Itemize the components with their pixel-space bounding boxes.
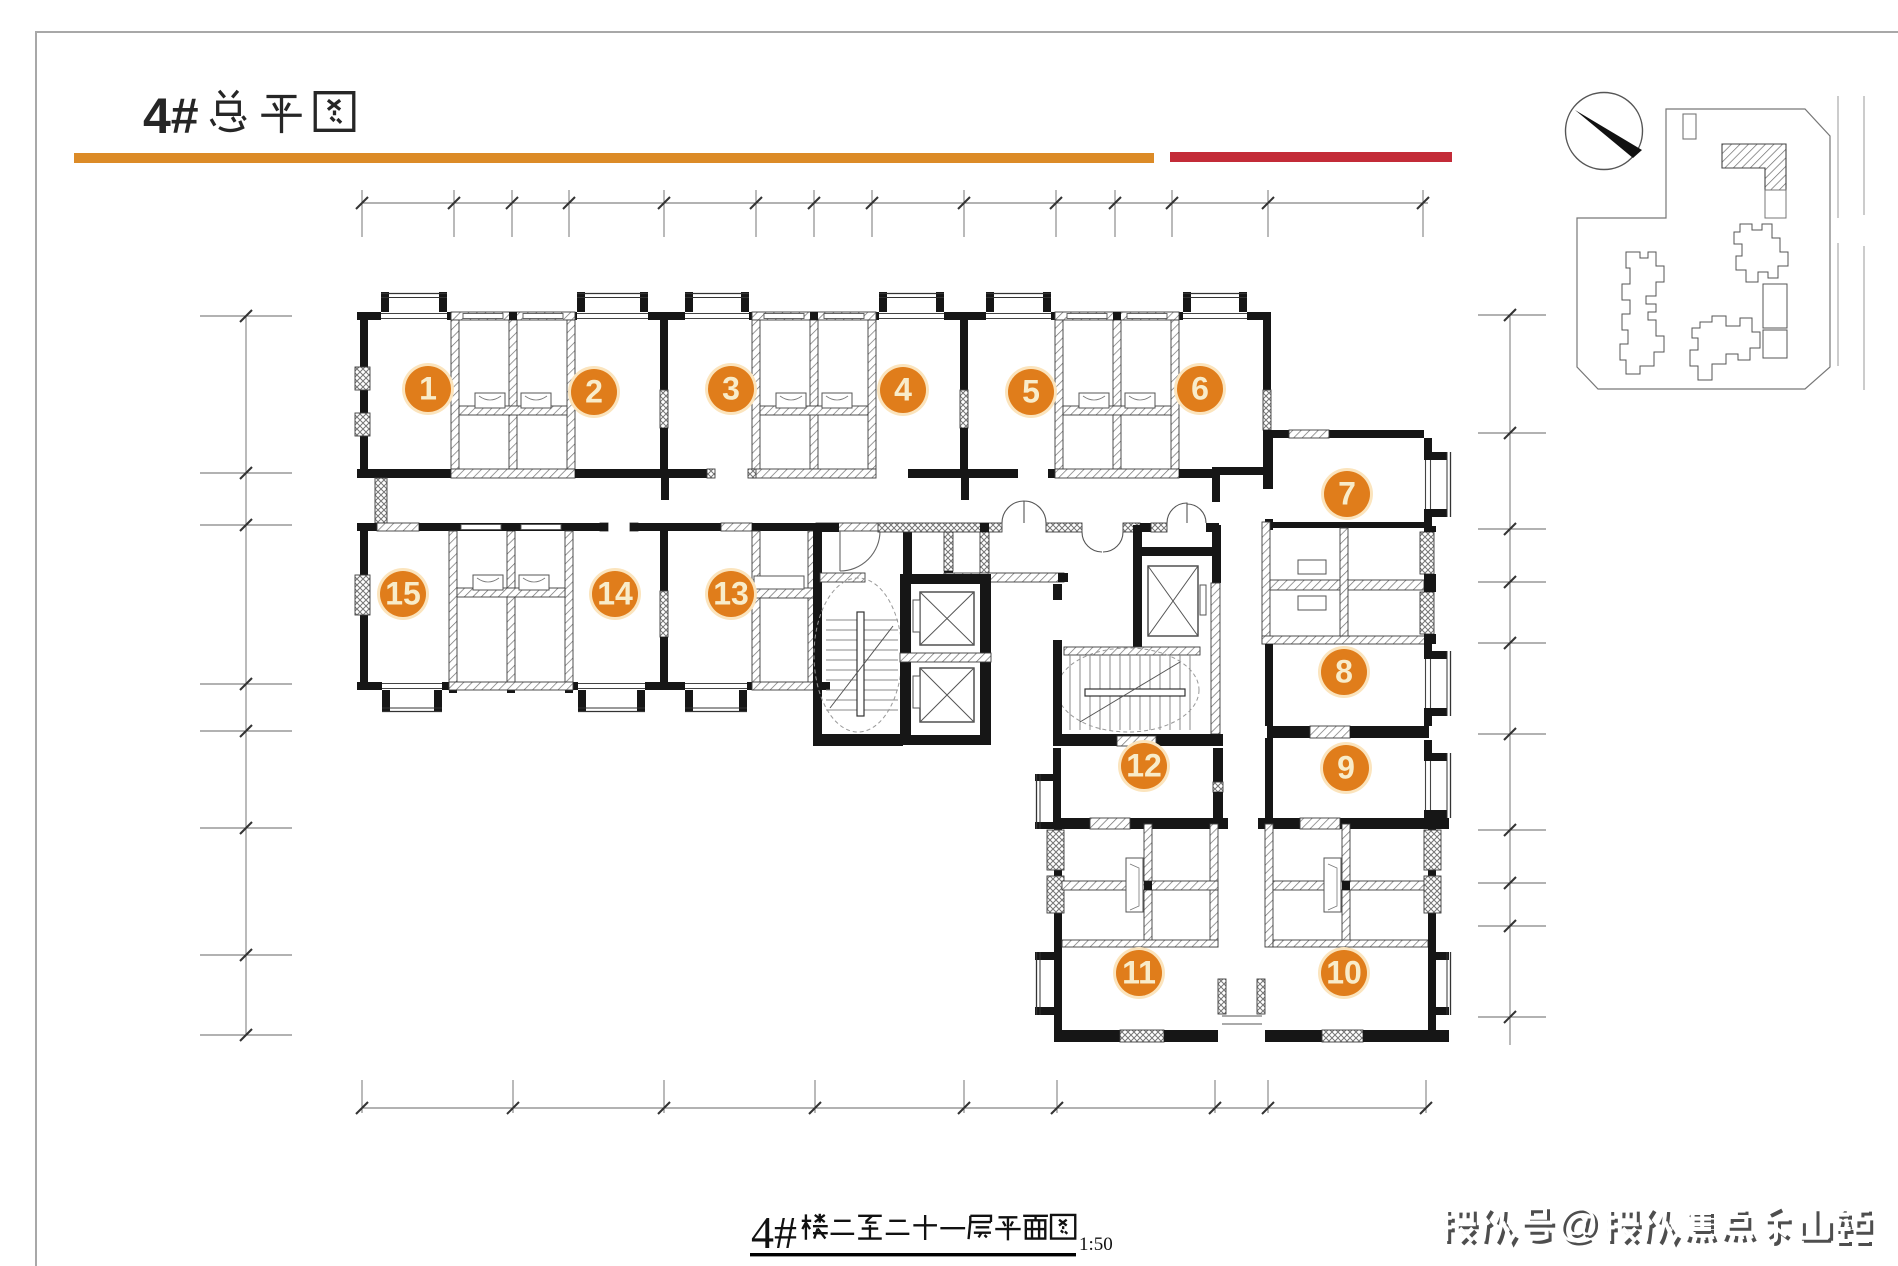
svg-text:2: 2 <box>585 374 603 410</box>
svg-text:6: 6 <box>1191 371 1209 407</box>
svg-text:7: 7 <box>1338 476 1356 512</box>
svg-text:3: 3 <box>722 371 740 407</box>
svg-text:1:50: 1:50 <box>1079 1234 1113 1255</box>
svg-text:11: 11 <box>1122 955 1156 991</box>
svg-text:1: 1 <box>419 371 437 407</box>
svg-text:15: 15 <box>385 576 421 612</box>
svg-text:10: 10 <box>1326 955 1362 991</box>
svg-text:4: 4 <box>894 372 912 408</box>
svg-text:4#: 4# <box>751 1207 797 1258</box>
svg-text:@: @ <box>1557 1200 1599 1246</box>
svg-text:9: 9 <box>1337 750 1355 786</box>
svg-text:12: 12 <box>1126 748 1162 784</box>
svg-text:8: 8 <box>1335 654 1353 690</box>
svg-text:14: 14 <box>597 576 633 612</box>
svg-text:13: 13 <box>713 576 749 612</box>
svg-text:4#: 4# <box>143 88 199 144</box>
svg-text:5: 5 <box>1022 374 1040 410</box>
